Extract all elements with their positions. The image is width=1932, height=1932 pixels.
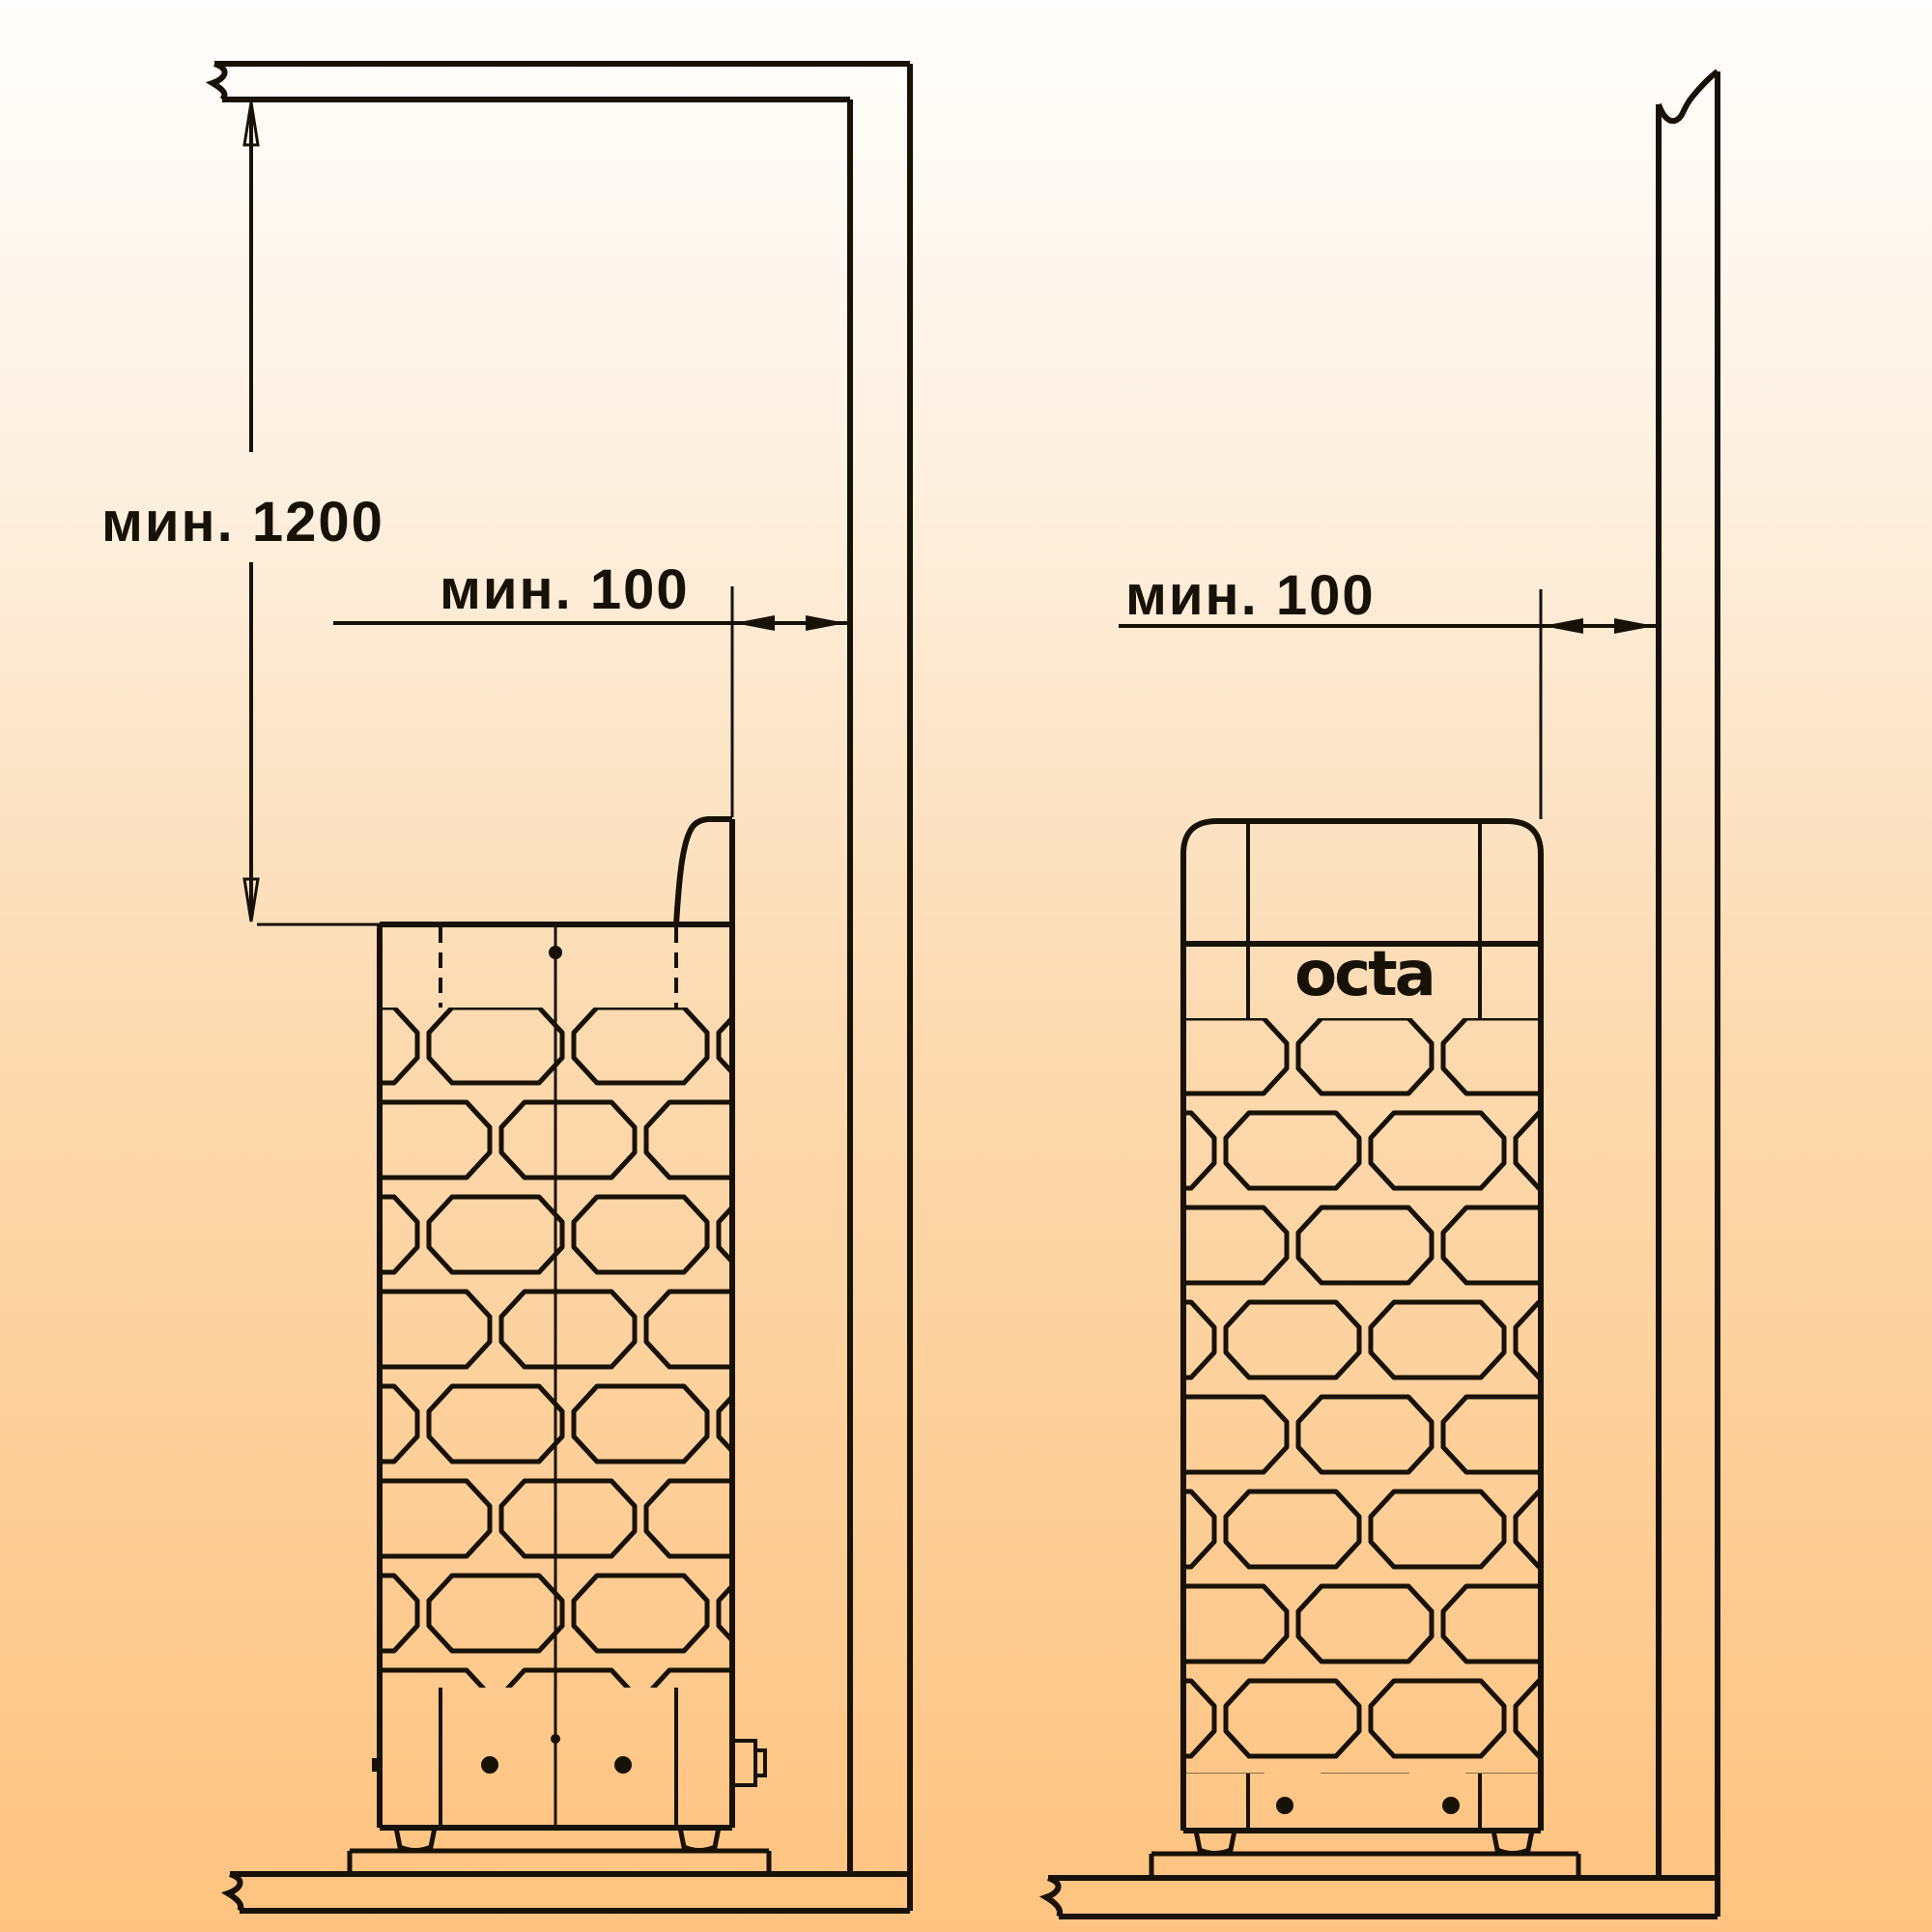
brand-logo: octa: [1294, 939, 1434, 1010]
base-screw: [614, 1756, 632, 1774]
base-screw: [1276, 1797, 1293, 1814]
label-min-100-left: мин. 100: [440, 558, 690, 621]
seam-rivet: [549, 946, 562, 959]
installation-diagram: octa мин. 1200 мин. 100 ми: [0, 0, 1932, 1932]
base-screw: [1442, 1797, 1460, 1814]
grille-pattern: [1185, 1018, 1539, 1774]
label-min-1200: мин. 1200: [101, 491, 384, 554]
label-min-100-right: мин. 100: [1125, 564, 1376, 627]
side-latch: [372, 1758, 380, 1772]
seam-rivet: [551, 1734, 560, 1744]
base-screw: [481, 1756, 498, 1774]
grille-pattern: [382, 1008, 730, 1688]
diagram-canvas: octa мин. 1200 мин. 100 ми: [0, 0, 1932, 1932]
background-gradient: [0, 0, 1932, 1932]
